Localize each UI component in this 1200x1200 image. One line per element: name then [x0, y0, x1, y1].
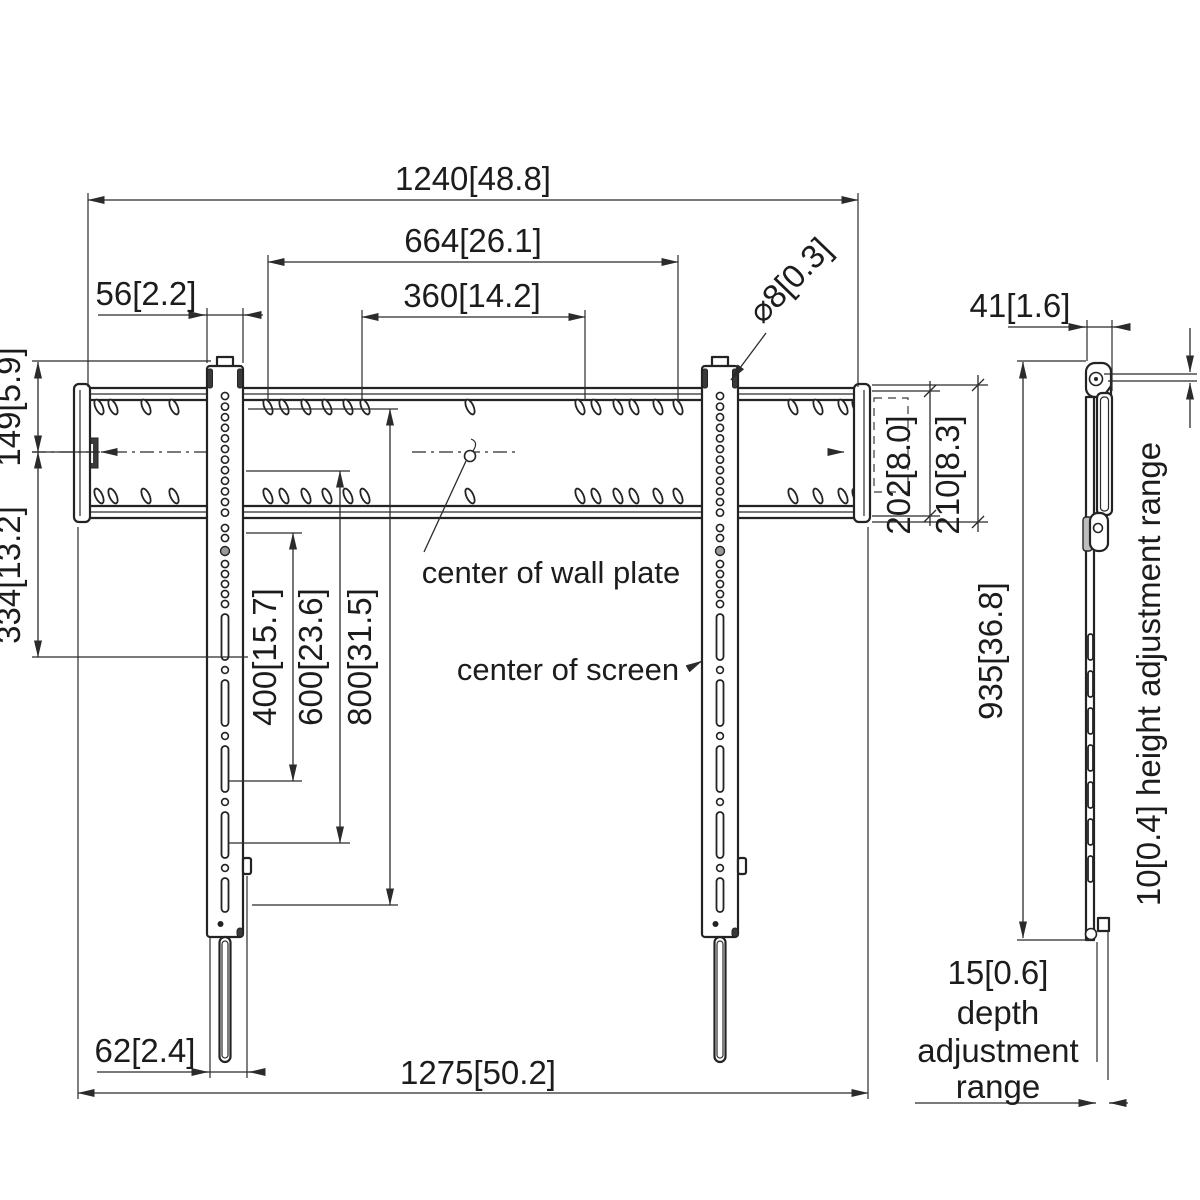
side-rail-slot: [1088, 634, 1093, 660]
rail-fastener: [716, 547, 725, 556]
dim-rail-top-to-center-label: 149[5.9]: [0, 347, 27, 466]
rail-hole: [716, 456, 723, 463]
rail-hole: [716, 600, 723, 607]
dim-overall-width-label: 1240[48.8]: [395, 160, 551, 197]
rail-hole: [716, 560, 723, 567]
rail-flange-left: [703, 369, 708, 388]
rail-hole: [221, 467, 228, 474]
rail-bottom-hook: [732, 928, 738, 937]
rail-hole: [716, 509, 723, 516]
dim-vesa-width-label: 360[14.2]: [403, 277, 541, 314]
rail-slot: [222, 680, 229, 726]
dim-vesa-600-label: 600[23.6]: [292, 588, 329, 726]
side-rail-slot: [1088, 745, 1093, 771]
rail-hole: [221, 392, 228, 399]
rail-hole: [716, 590, 723, 597]
rail-hole: [716, 414, 723, 421]
rail-hole: [221, 534, 228, 541]
leader-center-of-screen: center of screen: [457, 652, 702, 687]
rail-slot: [222, 614, 229, 660]
rail-hole: [716, 403, 723, 410]
rail-flange-left: [208, 369, 213, 388]
depth-adjustment-line2: depth: [957, 994, 1040, 1031]
wall-plate: [74, 384, 908, 522]
rail-hole: [716, 424, 723, 431]
rail-hole: [716, 477, 723, 484]
rail-hole: [222, 733, 229, 740]
dim-strap-offset-label: 62[2.4]: [95, 1032, 196, 1069]
rail-hole: [716, 570, 723, 577]
dim-plate-height-outer-label: 210[8.3]: [929, 415, 966, 534]
dim-vesa-400-label: 400[15.7]: [246, 588, 283, 726]
rail-hole: [221, 403, 228, 410]
rail-hole: [716, 488, 723, 495]
rail-hole: [717, 865, 724, 872]
technical-drawing: 1240[48.8] 664[26.1] 360[14.2] 56[2.2] ⌀…: [0, 0, 1200, 1200]
dim-vesa-800-label: 800[31.5]: [341, 588, 378, 726]
rail-hole: [221, 524, 228, 531]
rail-hole: [222, 865, 229, 872]
rail-slot: [717, 614, 724, 660]
rail-hole: [222, 799, 229, 806]
side-clamp-hole: [1094, 524, 1103, 533]
center-hole: [465, 451, 476, 462]
dim-overall-width-bottom-label: 1275[50.2]: [400, 1054, 556, 1091]
rail-hole: [716, 392, 723, 399]
right-end-cap: [854, 384, 870, 522]
rail-hole: [716, 534, 723, 541]
rail-slot: [717, 680, 724, 726]
drawing-page: 1240[48.8] 664[26.1] 360[14.2] 56[2.2] ⌀…: [0, 0, 1200, 1200]
rail-hole: [716, 498, 723, 505]
rail-hole: [717, 667, 724, 674]
side-rail-slots: [1088, 634, 1093, 882]
rail-fastener: [221, 547, 230, 556]
left-end-cap: [74, 384, 90, 522]
rail-hole: [716, 580, 723, 587]
rail-slot: [717, 878, 724, 912]
rail-hole: [717, 733, 724, 740]
depth-adjustment-value: 15[0.6]: [948, 954, 1049, 991]
depth-adjustment-line3: adjustment: [917, 1032, 1078, 1069]
rail-hole: [221, 570, 228, 577]
dim-depth-label: 41[1.6]: [970, 287, 1071, 324]
rail-hole: [221, 477, 228, 484]
rail-side-tab: [243, 858, 251, 874]
rail-hole: [221, 445, 228, 452]
rail-slot: [222, 878, 229, 912]
rail-hole: [221, 424, 228, 431]
rail-slot: [717, 812, 724, 858]
side-hook-hole-center: [1094, 377, 1098, 381]
rail-hole: [221, 560, 228, 567]
rail-hole: [222, 667, 229, 674]
dim-side-height-label: 935[36.8]: [972, 582, 1009, 720]
side-rail-slot: [1088, 782, 1093, 808]
depth-adjustment-line4: range: [956, 1068, 1040, 1105]
rail-side-tab: [738, 858, 746, 874]
side-bottom-roller: [1086, 929, 1097, 940]
rail-hole: [221, 580, 228, 587]
rail-hole: [716, 524, 723, 531]
center-of-wall-plate-label: center of wall plate: [422, 555, 680, 590]
side-screen-plate: [1097, 393, 1112, 515]
side-foot-tab: [1098, 918, 1109, 931]
rail-pin-hole: [218, 921, 224, 927]
side-rail-slot: [1088, 671, 1093, 697]
rail-slot: [222, 812, 229, 858]
rail-slot: [222, 746, 229, 792]
rail-bottom-hook: [237, 928, 243, 937]
rail-hole: [717, 799, 724, 806]
rail-strap: [220, 937, 231, 1062]
rail-hole: [716, 467, 723, 474]
rail-hole: [221, 435, 228, 442]
dim-center-to-lower-hole-label: 334[13.2]: [0, 506, 27, 644]
rail-pin-hole: [713, 921, 719, 927]
rail-hole: [221, 414, 228, 421]
rail-hole: [716, 445, 723, 452]
rail-hole: [221, 488, 228, 495]
side-rail-slot: [1088, 819, 1093, 845]
height-adjustment-label: 10[0.4] height adjustment range: [1130, 442, 1167, 906]
dim-plate-height-label: 202[8.0]: [880, 415, 917, 534]
rail-hole: [716, 435, 723, 442]
rail-hole: [221, 498, 228, 505]
dim-hole-span-label: 664[26.1]: [404, 222, 542, 259]
side-rail-slot: [1088, 708, 1093, 734]
rail-slot: [717, 746, 724, 792]
side-rail-slot: [1088, 856, 1093, 882]
rail-hole: [221, 456, 228, 463]
rail-hole: [221, 509, 228, 516]
rail-hole: [221, 600, 228, 607]
dim-rail-width-label: 56[2.2]: [96, 275, 197, 312]
rail-hole: [221, 590, 228, 597]
rail-strap: [715, 937, 726, 1062]
rail-flange-right: [238, 369, 243, 388]
center-of-screen-label: center of screen: [457, 652, 679, 687]
